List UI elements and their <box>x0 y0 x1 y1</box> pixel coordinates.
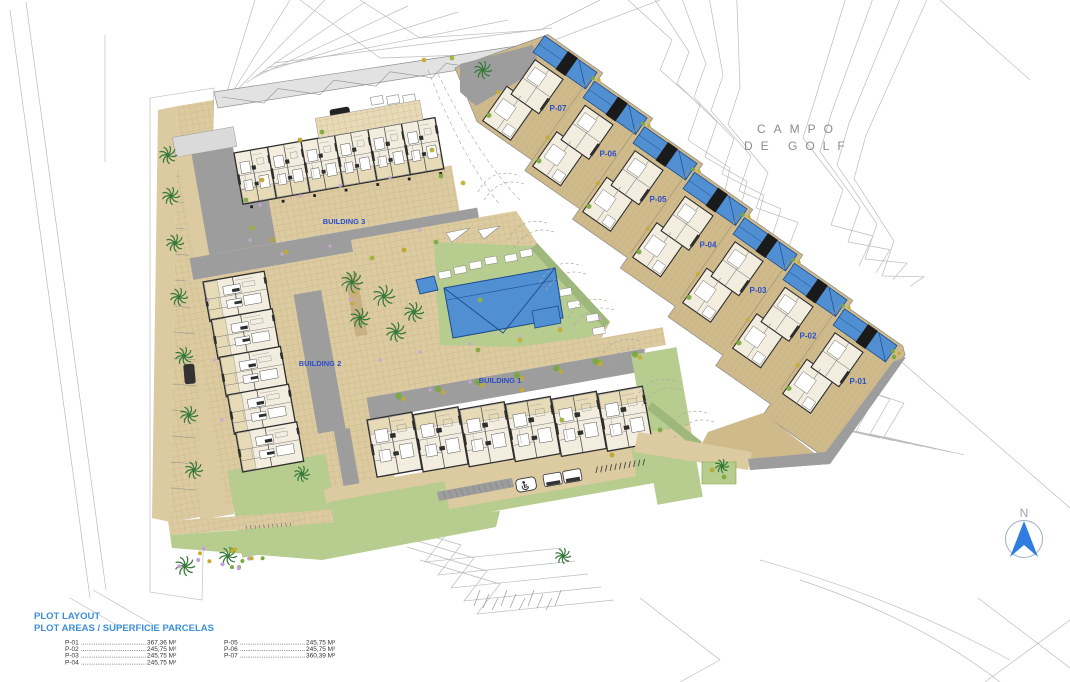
svg-text:245,75 M²: 245,75 M² <box>147 659 177 666</box>
svg-text:P-03: P-03 <box>750 286 767 295</box>
svg-text:P-04: P-04 <box>700 241 717 250</box>
svg-text:BUILDING 1: BUILDING 1 <box>479 376 522 385</box>
svg-text:PLOT LAYOUT: PLOT LAYOUT <box>34 611 100 622</box>
svg-text:PLOT AREAS / SUPERFICIE PARCEL: PLOT AREAS / SUPERFICIE PARCELAS <box>34 623 214 634</box>
svg-text:N: N <box>1020 506 1029 520</box>
svg-text:P-02: P-02 <box>800 332 817 341</box>
svg-text:CAMPO: CAMPO <box>757 122 841 136</box>
svg-text:BUILDING 2: BUILDING 2 <box>299 359 342 368</box>
svg-text:P-04: P-04 <box>65 659 79 666</box>
svg-text:..............................: .................................... <box>81 659 146 666</box>
svg-text:360,39 M²: 360,39 M² <box>306 653 336 660</box>
svg-text:P-01: P-01 <box>850 377 867 386</box>
svg-text:P-07: P-07 <box>550 104 567 113</box>
svg-text:P-07: P-07 <box>224 653 238 660</box>
svg-text:..............................: .................................... <box>240 653 305 660</box>
svg-text:P-05: P-05 <box>650 195 667 204</box>
svg-text:P-06: P-06 <box>600 150 617 159</box>
svg-text:DE: DE <box>744 139 777 153</box>
svg-text:GOLF: GOLF <box>788 139 853 153</box>
svg-text:BUILDING 3: BUILDING 3 <box>323 217 366 226</box>
